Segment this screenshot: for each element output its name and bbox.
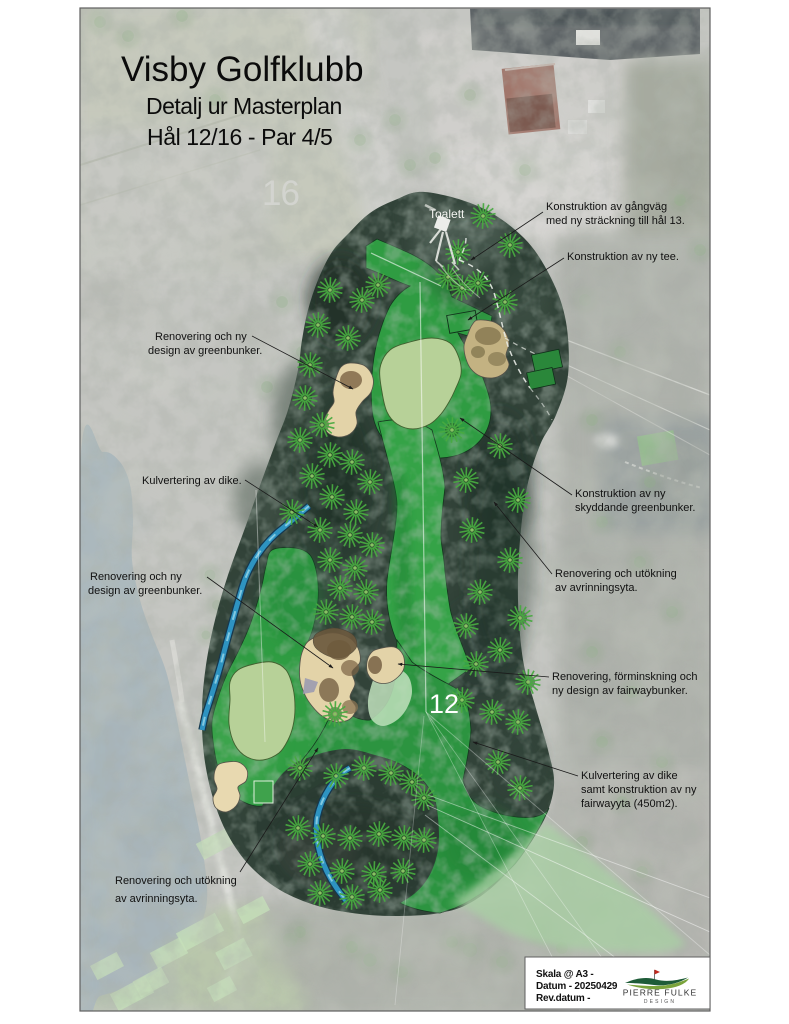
svg-text:PIERRE FULKE: PIERRE FULKE: [623, 988, 698, 998]
svg-text:12: 12: [429, 689, 459, 719]
svg-text:design av greenbunker.: design av greenbunker.: [148, 345, 262, 357]
svg-text:samt konstruktion av ny: samt konstruktion av ny: [581, 784, 697, 796]
svg-text:Datum - 20250429: Datum - 20250429: [536, 981, 618, 992]
svg-text:Konstruktion av gångväg: Konstruktion av gångväg: [546, 201, 667, 213]
svg-text:Konstruktion av ny: Konstruktion av ny: [575, 488, 666, 500]
svg-text:Skala @ A3 -: Skala @ A3 -: [536, 969, 594, 980]
svg-text:Konstruktion av ny tee.: Konstruktion av ny tee.: [567, 251, 679, 263]
svg-text:Detalj ur Masterplan: Detalj ur Masterplan: [146, 93, 342, 119]
svg-text:Renovering och utökning: Renovering och utökning: [115, 875, 237, 887]
svg-text:Hål 12/16 - Par 4/5: Hål 12/16 - Par 4/5: [147, 124, 332, 150]
svg-text:Renovering och utökning: Renovering och utökning: [555, 568, 677, 580]
svg-text:av avrinningsyta.: av avrinningsyta.: [115, 893, 198, 905]
svg-text:Rev.datum -: Rev.datum -: [536, 993, 590, 1004]
svg-text:Visby Golfklubb: Visby Golfklubb: [121, 50, 364, 89]
svg-text:skyddande greenbunker.: skyddande greenbunker.: [575, 502, 695, 514]
svg-text:fairwayyta (450m2).: fairwayyta (450m2).: [581, 798, 678, 810]
svg-text:16: 16: [262, 174, 299, 213]
svg-text:av avrinningsyta.: av avrinningsyta.: [555, 582, 638, 594]
svg-text:Renovering och ny: Renovering och ny: [90, 571, 182, 583]
svg-text:Kulvertering av dike.: Kulvertering av dike.: [142, 475, 242, 487]
svg-text:DESIGN: DESIGN: [644, 999, 676, 1005]
svg-text:design av greenbunker.: design av greenbunker.: [88, 585, 202, 597]
svg-text:Renovering och ny: Renovering och ny: [155, 331, 247, 343]
svg-text:ny design av fairwaybunker.: ny design av fairwaybunker.: [552, 685, 688, 697]
svg-text:Renovering, förminskning och: Renovering, förminskning och: [552, 671, 698, 683]
svg-text:med ny sträckning till hål 13.: med ny sträckning till hål 13.: [546, 215, 685, 227]
svg-text:Kulvertering av dike: Kulvertering av dike: [581, 770, 678, 782]
svg-text:Toalett: Toalett: [429, 207, 465, 221]
